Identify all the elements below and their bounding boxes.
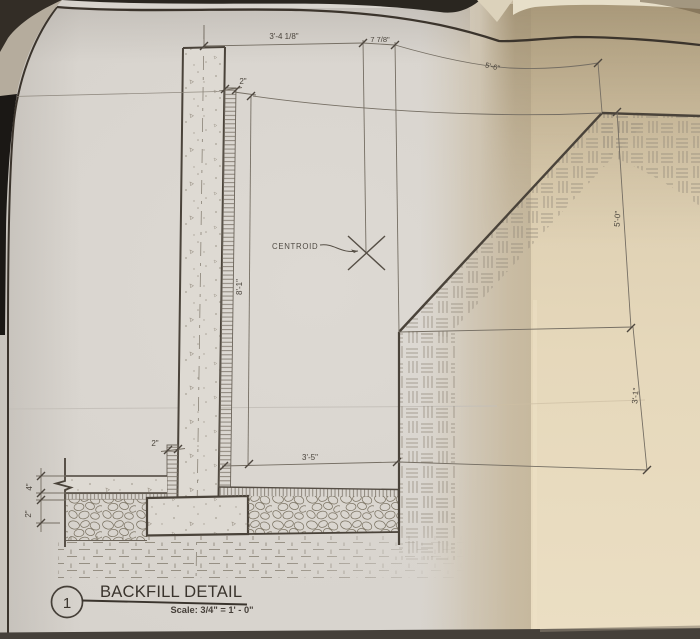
svg-text:2": 2"	[239, 77, 246, 86]
svg-text:2": 2"	[151, 439, 158, 448]
svg-text:8'-1": 8'-1"	[235, 279, 244, 295]
svg-text:2": 2"	[24, 510, 33, 517]
svg-text:5'-0": 5'-0"	[612, 210, 622, 227]
svg-text:BACKFILL DETAIL: BACKFILL DETAIL	[100, 582, 242, 601]
svg-text:3'-4 1/8": 3'-4 1/8"	[269, 32, 298, 41]
svg-text:3'-1": 3'-1"	[630, 387, 640, 404]
svg-text:1: 1	[63, 595, 71, 612]
svg-text:Scale: 3/4" = 1' - 0": Scale: 3/4" = 1' - 0"	[170, 605, 253, 615]
svg-text:3'-5": 3'-5"	[302, 453, 318, 462]
svg-text:4": 4"	[25, 483, 34, 490]
svg-text:CENTROID: CENTROID	[272, 242, 318, 251]
svg-text:7 7/8": 7 7/8"	[370, 35, 390, 44]
